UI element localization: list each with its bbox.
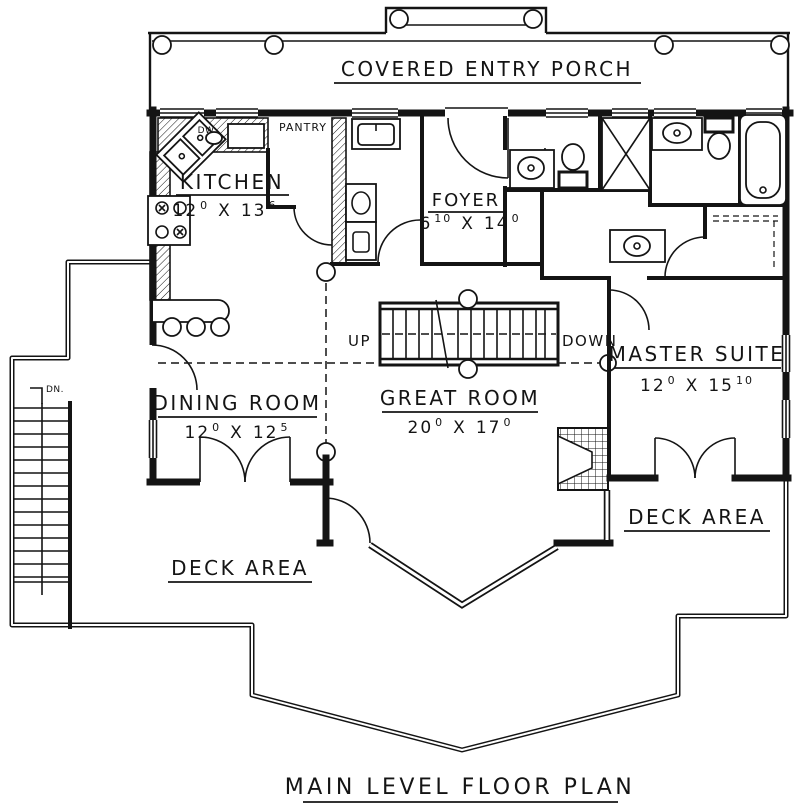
walk-in-closet (665, 206, 778, 277)
window (147, 420, 159, 458)
master-entry-door-arc (609, 290, 649, 330)
laundry-sink-icon (352, 119, 400, 149)
post (317, 263, 335, 281)
dishwasher-label: DW (198, 126, 215, 136)
kitchen-peninsula (153, 300, 229, 336)
vanity-sink-icon (610, 230, 665, 262)
deck-door-opening (147, 345, 159, 388)
dining-room-label: DINING ROOM (152, 391, 321, 415)
porch-label: COVERED ENTRY PORCH (341, 57, 633, 81)
porch-post (390, 10, 408, 28)
utility-room (332, 118, 422, 264)
bay-windows (370, 545, 557, 605)
newel-post (459, 360, 477, 378)
window (216, 107, 258, 119)
half-bath-toilet-icon (559, 144, 587, 188)
stairs-up-label: UP (348, 332, 371, 350)
floor-plan-page: COVERED ENTRY PORCH (0, 0, 800, 810)
great-room-dims: 200X170 (408, 416, 513, 438)
deck-left-label: DECK AREA (171, 556, 309, 580)
exterior-stairs: DN. (14, 385, 70, 627)
window (780, 400, 792, 438)
dining-room: DINING ROOM 120X125 (152, 263, 335, 482)
kitchen: DW KITCHEN 120X136 (148, 112, 289, 336)
dryer-icon (346, 222, 376, 260)
plan-title: MAIN LEVEL FLOOR PLAN (285, 775, 635, 802)
pantry-door-arc (294, 207, 332, 245)
front-door-opening (445, 106, 508, 120)
column-line (317, 263, 335, 461)
window (546, 107, 588, 119)
fireplace-icon (558, 428, 608, 490)
porch-post (771, 36, 789, 54)
great-room-label: GREAT ROOM (380, 386, 540, 410)
master-toilet-icon (705, 118, 733, 159)
deck-areas: DECK AREA DECK AREA (168, 505, 770, 582)
newel-post (459, 290, 477, 308)
foyer-label: FOYER (432, 190, 500, 211)
stool-icon (211, 318, 229, 336)
covered-entry-porch: COVERED ENTRY PORCH (148, 8, 790, 110)
plan-title-text: MAIN LEVEL FLOOR PLAN (285, 775, 635, 800)
kitchen-counter (150, 245, 170, 300)
dining-french-doors (200, 437, 290, 482)
master-french-doors (655, 438, 735, 478)
deck-right-label: DECK AREA (628, 505, 766, 529)
kitchen-dims: 120X136 (173, 199, 278, 221)
master-suite-label: MASTER SUITE (609, 342, 786, 366)
utility-door-arc (378, 220, 420, 262)
stool-icon (187, 318, 205, 336)
stairs-dn-label: DN. (46, 385, 64, 395)
bathtub-icon (740, 115, 786, 205)
dn-leader (30, 388, 42, 404)
front-door-arc (448, 118, 508, 178)
master-bath-sink-icon (652, 118, 702, 150)
washer-icon (346, 184, 376, 222)
stool-icon (163, 318, 181, 336)
dishwasher-icon (228, 124, 264, 148)
window (352, 107, 398, 119)
pantry-label: PANTRY (279, 121, 327, 134)
porch-post (265, 36, 283, 54)
porch-post (655, 36, 673, 54)
floor-plan-drawing: COVERED ENTRY PORCH (0, 0, 800, 810)
porch-post (153, 36, 171, 54)
master-suite-dims: 120X1510 (640, 374, 754, 396)
master-suite: MASTER SUITE 120X1510 (609, 342, 788, 478)
shower-icon (602, 118, 650, 190)
porch-post (524, 10, 542, 28)
great-room-deck-door-arc (325, 498, 370, 543)
half-bath-sink-icon (510, 150, 554, 188)
closet-door-arc (665, 237, 705, 277)
